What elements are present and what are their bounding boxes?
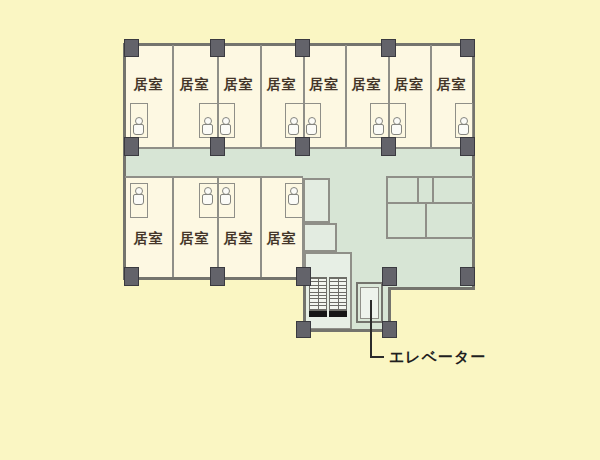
structural-column — [382, 321, 397, 338]
wall — [432, 177, 434, 204]
room-label: 居室 — [345, 75, 388, 93]
toilet-icon — [391, 117, 402, 135]
structural-column — [295, 137, 310, 156]
structural-column — [296, 321, 311, 338]
structural-column — [124, 267, 139, 286]
wall — [388, 287, 475, 290]
structural-column — [295, 39, 310, 57]
wall — [172, 178, 174, 277]
utility-room-a — [303, 178, 330, 223]
stair-landing-bar — [329, 311, 347, 317]
stairs-icon — [309, 277, 327, 311]
wall — [386, 177, 388, 238]
structural-column — [124, 137, 139, 156]
room-label: 居室 — [260, 229, 303, 247]
elevator-leader-line — [370, 356, 384, 358]
toilet-icon — [288, 187, 299, 205]
structural-column — [460, 267, 475, 286]
toilet-icon — [288, 117, 299, 135]
toilet-icon — [458, 117, 469, 135]
toilet-icon — [133, 117, 144, 135]
wall — [386, 237, 473, 239]
structural-column — [382, 267, 397, 286]
room-label: 居室 — [172, 75, 217, 93]
wall — [125, 176, 303, 178]
structural-column — [210, 137, 225, 156]
toilet-icon — [306, 117, 317, 135]
elevator-label: エレベーター — [389, 348, 486, 367]
toilet-icon — [133, 187, 144, 205]
toilet-icon — [373, 117, 384, 135]
structural-column — [381, 39, 396, 57]
room-label: 居室 — [430, 75, 473, 93]
structural-column — [460, 39, 475, 57]
room-label: 居室 — [125, 229, 172, 247]
wall — [386, 202, 473, 204]
stairs-icon — [329, 277, 347, 311]
wall — [172, 45, 174, 147]
room-label: 居室 — [388, 75, 430, 93]
room-label: 居室 — [303, 75, 345, 93]
room-label: 居室 — [260, 75, 303, 93]
floor-plan-canvas: 居室 居室 居室 居室 居室 居室 居室 居室 居室 居室 居室 居室 エレベー… — [0, 0, 600, 460]
room-label: 居室 — [172, 229, 217, 247]
stair-landing-bar — [309, 311, 327, 317]
room-label: 居室 — [125, 75, 172, 93]
wall — [303, 329, 391, 332]
room-label: 居室 — [217, 75, 260, 93]
structural-column — [210, 39, 225, 57]
structural-column — [460, 137, 475, 156]
toilet-icon — [220, 187, 231, 205]
toilet-icon — [202, 117, 213, 135]
wall — [386, 176, 473, 178]
toilet-icon — [202, 187, 213, 205]
structural-column — [210, 267, 225, 286]
wall — [430, 45, 432, 147]
structural-column — [296, 267, 311, 286]
room-label: 居室 — [217, 229, 260, 247]
structural-column — [381, 137, 396, 156]
wall — [345, 45, 347, 147]
structural-column — [124, 39, 139, 57]
utility-room-b — [303, 223, 337, 252]
wall — [260, 45, 262, 147]
toilet-icon — [220, 117, 231, 135]
wall — [260, 178, 262, 277]
wall — [417, 177, 419, 204]
wall — [425, 203, 427, 239]
elevator-leader-line — [370, 300, 372, 358]
